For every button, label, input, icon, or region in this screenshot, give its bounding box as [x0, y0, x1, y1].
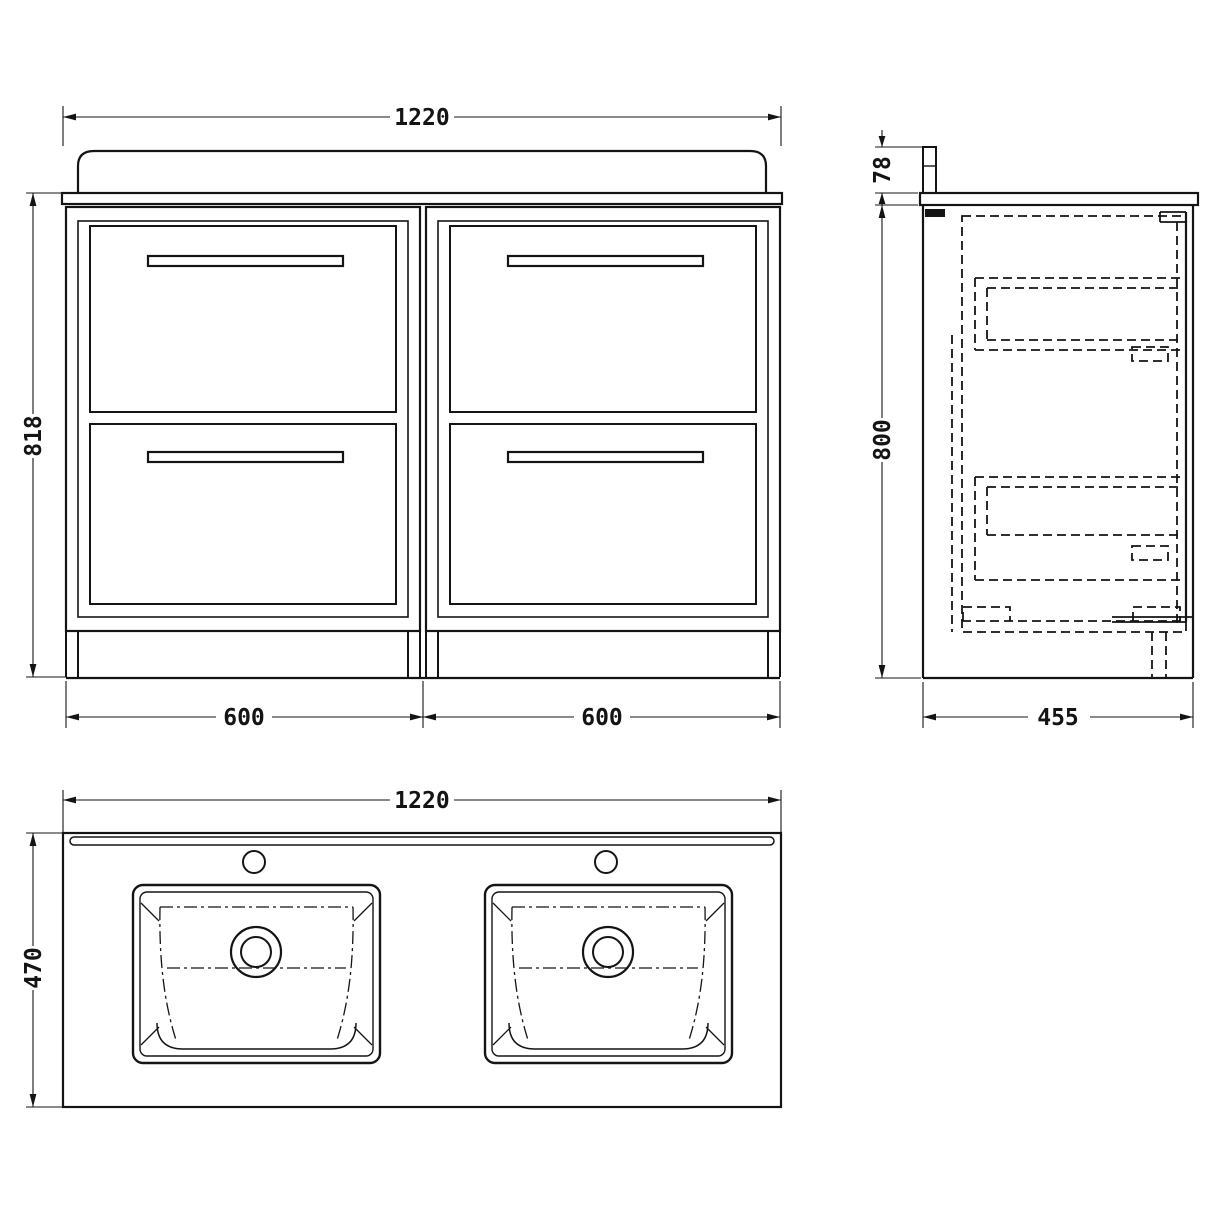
arrowhead: [768, 797, 781, 804]
bottom-drawer-runner: [1132, 546, 1168, 560]
arrowhead: [879, 665, 886, 678]
front-right-unit: [426, 207, 780, 677]
arrowhead: [30, 1094, 37, 1107]
hidden-back-foot: [1152, 632, 1166, 677]
plan-right-basin: [485, 851, 732, 1063]
dim-label-width: 1220: [394, 105, 449, 131]
arrowhead: [879, 205, 886, 218]
basin-floor-edge: [157, 1023, 356, 1049]
countertop-plan-outline: [63, 833, 781, 1107]
side-view: 78 800 455: [870, 130, 1198, 731]
dim-label-left-unit: 600: [223, 705, 265, 731]
counter-slab-edge: [62, 193, 782, 204]
arrowhead: [879, 136, 886, 147]
side-dim-height: 800: [870, 205, 921, 678]
waste-outer-ring: [231, 927, 281, 977]
hidden-bottom-panel: [962, 607, 1186, 621]
unit-inner-frame: [78, 221, 408, 617]
plan-dim-width: 1220: [63, 788, 781, 834]
top-drawer-handle: [148, 256, 343, 266]
back-upstand-plan: [70, 837, 774, 845]
dim-label-depth: 470: [21, 947, 47, 989]
arrowhead: [30, 833, 37, 846]
unit-outer-frame: [66, 207, 420, 631]
basin-left-slope: [160, 907, 176, 1040]
arrowhead: [923, 714, 936, 721]
top-drawer-box-hidden: [975, 278, 1180, 350]
dim-label-depth: 455: [1037, 705, 1079, 731]
arrowhead: [63, 797, 76, 804]
top-drawer-front: [90, 226, 396, 412]
bottom-drawer-box-hidden: [975, 477, 1180, 580]
vanity-unit-drawing: 1220 818 600 600: [0, 0, 1224, 1224]
dim-label-upstand: 78: [870, 156, 896, 184]
dim-label-height: 818: [21, 415, 47, 457]
side-hidden-detail: [952, 216, 1186, 677]
arrowhead: [63, 114, 76, 121]
basin-right-slope: [337, 907, 353, 1040]
front-dim-height: 818: [21, 193, 66, 677]
arrowhead: [768, 114, 781, 121]
hidden-back-lines: [952, 222, 1177, 632]
bottom-drawer-handle: [148, 452, 343, 462]
side-dim-depth: 455: [923, 682, 1193, 731]
front-view: 1220 818 600 600: [21, 105, 782, 731]
front-panel-top-notch: [1160, 212, 1186, 222]
arrowhead: [66, 714, 79, 721]
technical-drawing-sheet: 1220 818 600 600: [0, 0, 1224, 1224]
arrowhead: [423, 714, 436, 721]
dim-label-right-unit: 600: [581, 705, 623, 731]
front-counter: [62, 151, 782, 204]
counter-top-profile: [78, 151, 766, 193]
unit-legs: [66, 631, 420, 677]
basin-inner-rim: [140, 892, 373, 1056]
arrowhead: [30, 193, 37, 206]
arrowhead: [30, 664, 37, 677]
tap-hole: [243, 851, 265, 873]
front-left-unit: [66, 207, 420, 677]
counter-slab-side: [920, 193, 1198, 205]
waste-inner-ring: [241, 937, 271, 967]
arrowhead: [879, 193, 886, 204]
plan-dim-depth: 470: [21, 833, 62, 1107]
dim-label-height: 800: [870, 419, 896, 461]
extension-lines: [66, 681, 780, 728]
basin-corner-chamfers: [141, 903, 372, 1045]
plan-left-basin: [133, 851, 380, 1063]
arrowhead: [1180, 714, 1193, 721]
basin-outer-rim: [133, 885, 380, 1063]
arrowhead: [410, 714, 423, 721]
arrowhead: [767, 714, 780, 721]
dim-label-width: 1220: [394, 788, 449, 814]
front-dim-units: 600 600: [66, 681, 780, 731]
front-dim-width: 1220: [63, 105, 781, 146]
fixing-block: [925, 209, 945, 217]
upstand-profile: [923, 147, 936, 193]
plan-view: 1220 470: [21, 788, 781, 1107]
